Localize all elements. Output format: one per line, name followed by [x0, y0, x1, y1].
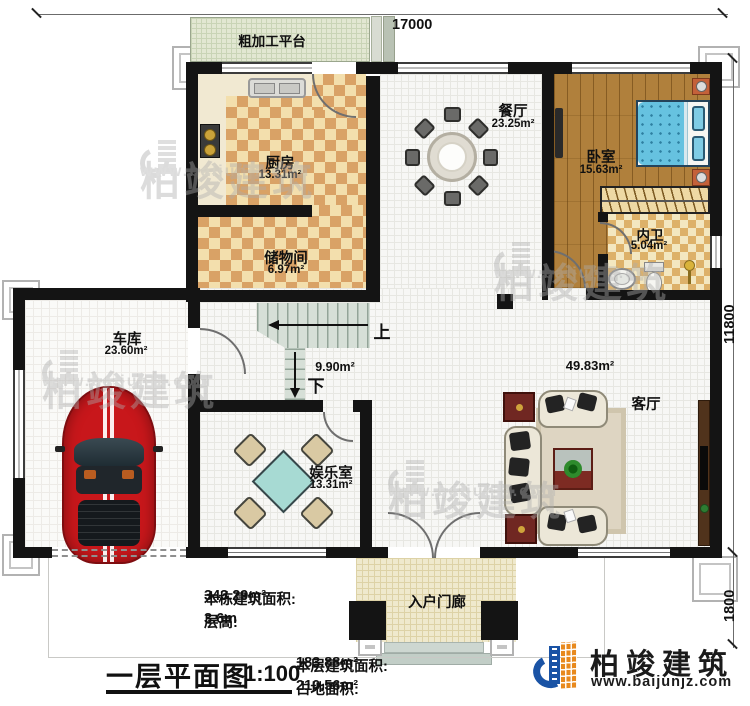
car-icon — [62, 386, 156, 564]
plant-icon — [564, 460, 582, 478]
end-table-icon — [503, 392, 535, 422]
dining-chair-icon — [444, 107, 461, 122]
nightstand-icon — [692, 169, 710, 186]
dim-tick — [717, 8, 728, 19]
stat-value: 343.29m² — [204, 588, 266, 604]
room-label-platform: 粗加工平台 — [238, 30, 306, 50]
wall — [188, 300, 200, 328]
dining-table-icon — [427, 132, 477, 182]
floor-drain-stem — [688, 271, 691, 284]
plan-title: 一层平面图 — [106, 655, 251, 694]
wall — [480, 547, 578, 558]
end-table-icon — [505, 514, 537, 544]
wall — [13, 288, 200, 300]
floor-plan: 17000 11800 1800 粗加工平台 — [0, 0, 750, 706]
wall — [598, 212, 608, 222]
wall — [360, 412, 372, 547]
wardrobe-icon — [600, 186, 710, 214]
sofa-cushion — [509, 431, 531, 452]
bathroom-sink-icon — [608, 268, 636, 290]
stair-down-arrow — [294, 352, 296, 388]
porch-step — [384, 642, 484, 653]
sofa-cushion — [508, 457, 530, 477]
porch-column-base — [358, 638, 382, 656]
room-label-porch: 入户门廊 — [408, 591, 466, 612]
wall — [598, 254, 608, 300]
structural-column — [497, 294, 513, 309]
dimension-line-top — [38, 14, 728, 15]
room-area-entertainment: 13.31m² — [310, 479, 353, 491]
plant-icon — [700, 504, 709, 513]
watermark-logo-icon — [140, 140, 182, 184]
stat-value: 210.56m² — [296, 678, 358, 694]
dining-chair-icon — [483, 149, 498, 166]
garage-door-opening — [52, 549, 186, 557]
room-area-living: 49.83m² — [566, 358, 614, 373]
kitchen-window — [222, 62, 312, 74]
dim-top-value: 17000 — [392, 17, 432, 33]
room-area-ensuite: 5.04m² — [631, 240, 667, 252]
dim-right-main: 11800 — [722, 268, 740, 344]
room-area-kitchen: 13.31m² — [259, 169, 302, 181]
bedroom-tv-icon — [555, 108, 563, 158]
dim-right-porch: 1800 — [722, 566, 740, 622]
stat-value: 183.88m² — [296, 655, 358, 671]
room-area-storage: 6.97m² — [268, 264, 304, 276]
wall — [198, 205, 312, 217]
wall — [186, 290, 374, 302]
title-underline — [106, 690, 292, 694]
stat-value: 3.6m — [204, 611, 237, 627]
wall — [326, 547, 388, 558]
wall — [542, 288, 548, 300]
wall — [670, 547, 710, 558]
wall — [13, 478, 25, 558]
porch-step — [376, 653, 492, 665]
entertainment-window — [228, 547, 326, 558]
wall — [366, 76, 380, 302]
toilet-tank-icon — [644, 262, 664, 272]
kitchen-sink-icon — [248, 78, 306, 98]
brand-url: www.baijunjz.com — [591, 674, 732, 690]
room-area-dining: 23.25m² — [492, 118, 535, 130]
tv-icon — [700, 446, 708, 490]
bedroom-window — [572, 62, 690, 74]
floor-drain-icon — [684, 260, 695, 271]
driveway-outline — [48, 558, 49, 657]
dining-chair-icon — [444, 191, 461, 206]
sofa-cushion — [509, 482, 532, 503]
wall — [356, 62, 398, 74]
porch-column — [481, 601, 518, 640]
dining-chair-icon — [405, 149, 420, 166]
stove-icon — [200, 124, 220, 158]
ensuite-window — [710, 236, 722, 268]
dim-tick — [31, 8, 42, 19]
dimension-line-right — [733, 58, 734, 648]
wall — [353, 400, 372, 412]
wall — [542, 74, 554, 288]
dining-window — [398, 62, 508, 74]
porch-column — [349, 601, 386, 640]
room-label-living: 客厅 — [632, 393, 661, 414]
garage-window — [13, 370, 25, 478]
brand-logo-icon — [537, 642, 579, 692]
wall — [186, 62, 198, 300]
platform-chimney — [371, 16, 382, 62]
wall — [186, 547, 228, 558]
room-area-garage: 23.60m² — [105, 345, 148, 357]
wall — [710, 62, 722, 236]
wall — [13, 288, 25, 370]
bed-icon — [636, 100, 710, 167]
living-window — [578, 547, 670, 558]
stair-up-arrowhead — [268, 320, 279, 330]
nightstand-icon — [692, 78, 710, 95]
wall — [508, 62, 572, 74]
wall — [200, 400, 323, 412]
stair-down-label: 下 — [308, 372, 325, 397]
wall — [188, 374, 200, 547]
plan-scale: 1:100 — [244, 661, 300, 687]
stair-up-label: 上 — [374, 318, 391, 343]
wall — [710, 268, 722, 558]
stair-down-arrowhead — [290, 388, 300, 398]
stair-up-arrow — [278, 324, 368, 326]
room-area-bedroom: 15.63m² — [580, 164, 623, 176]
wall — [598, 290, 710, 300]
porch-column-base — [490, 638, 514, 656]
